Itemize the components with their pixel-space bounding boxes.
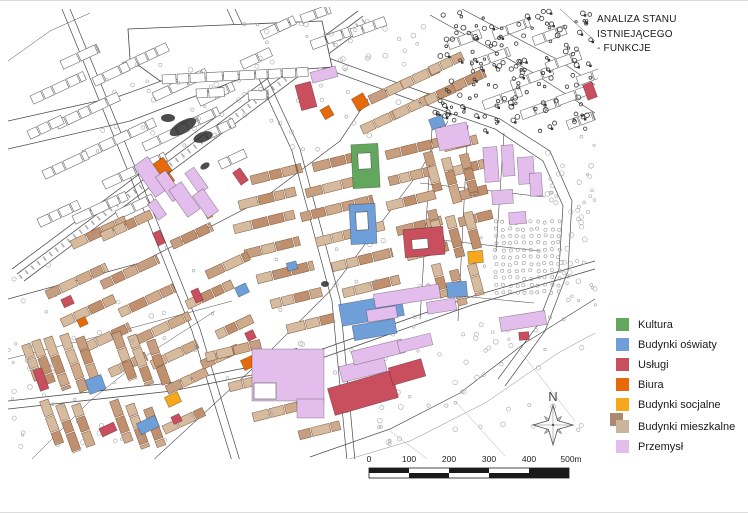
legend: Kultura Budynki oświaty Usługi Biura Bud… [616, 318, 735, 460]
compass-center-dot [552, 424, 554, 426]
legend-item-uslugi: Usługi [616, 358, 735, 371]
scale-segment [409, 468, 449, 473]
scale-segment [409, 473, 449, 478]
scale-segment [449, 473, 489, 478]
scale-label: 400 [522, 454, 536, 464]
legend-item-mieszkalne: Budynki mieszkalne [616, 420, 735, 433]
kultura-swatch [616, 318, 629, 331]
legend-item-oswiata: Budynki oświaty [616, 338, 735, 351]
mieszkalne-swatch [616, 420, 629, 433]
legend-label: Budynki oświaty [638, 339, 717, 351]
city-map [7, 5, 603, 463]
legend-item-socjalne: Budynki socjalne [616, 398, 735, 411]
legend-label: Kultura [638, 319, 673, 331]
scale-label: 100 [402, 454, 416, 464]
scale-segment [369, 473, 409, 478]
legend-label: Usługi [638, 359, 669, 371]
legend-label: Biura [638, 379, 664, 391]
legend-item-kultura: Kultura [616, 318, 735, 331]
analysis-map-page: N 0 100 200 300 400 500m [0, 0, 748, 513]
scale-segment [529, 473, 569, 478]
scale-segment [449, 468, 489, 473]
scale-segment [489, 468, 529, 473]
scale-label: 500m [560, 454, 581, 464]
scale-segment [529, 468, 569, 473]
scale-label: 300 [482, 454, 496, 464]
legend-item-biura: Biura [616, 378, 735, 391]
uslugi-swatch [616, 358, 629, 371]
oswiata-swatch [616, 338, 629, 351]
biura-swatch [616, 378, 629, 391]
legend-label: Przemysł [638, 441, 683, 453]
function-buildings [33, 66, 597, 437]
przemysl-swatch [616, 440, 629, 453]
legend-label: Budynki mieszkalne [638, 421, 735, 433]
scale-label: 200 [442, 454, 456, 464]
compass-north-label: N [548, 389, 557, 404]
socjalne-swatch [616, 398, 629, 411]
scale-segment [489, 473, 529, 478]
legend-item-przemysl: Przemysł [616, 440, 735, 453]
title-line-2: - FUNKCJE [597, 42, 747, 57]
scale-segment [369, 468, 409, 473]
compass-rose: N [533, 389, 573, 445]
title-line-1: ANALIZA STANU ISTNIEJĄCEGO [597, 13, 747, 42]
scale-label: 0 [367, 454, 372, 464]
legend-label: Budynki socjalne [638, 399, 721, 411]
page-title: ANALIZA STANU ISTNIEJĄCEGO - FUNKCJE [597, 13, 747, 57]
scale-bar: 0 100 200 300 400 500m [367, 454, 582, 478]
